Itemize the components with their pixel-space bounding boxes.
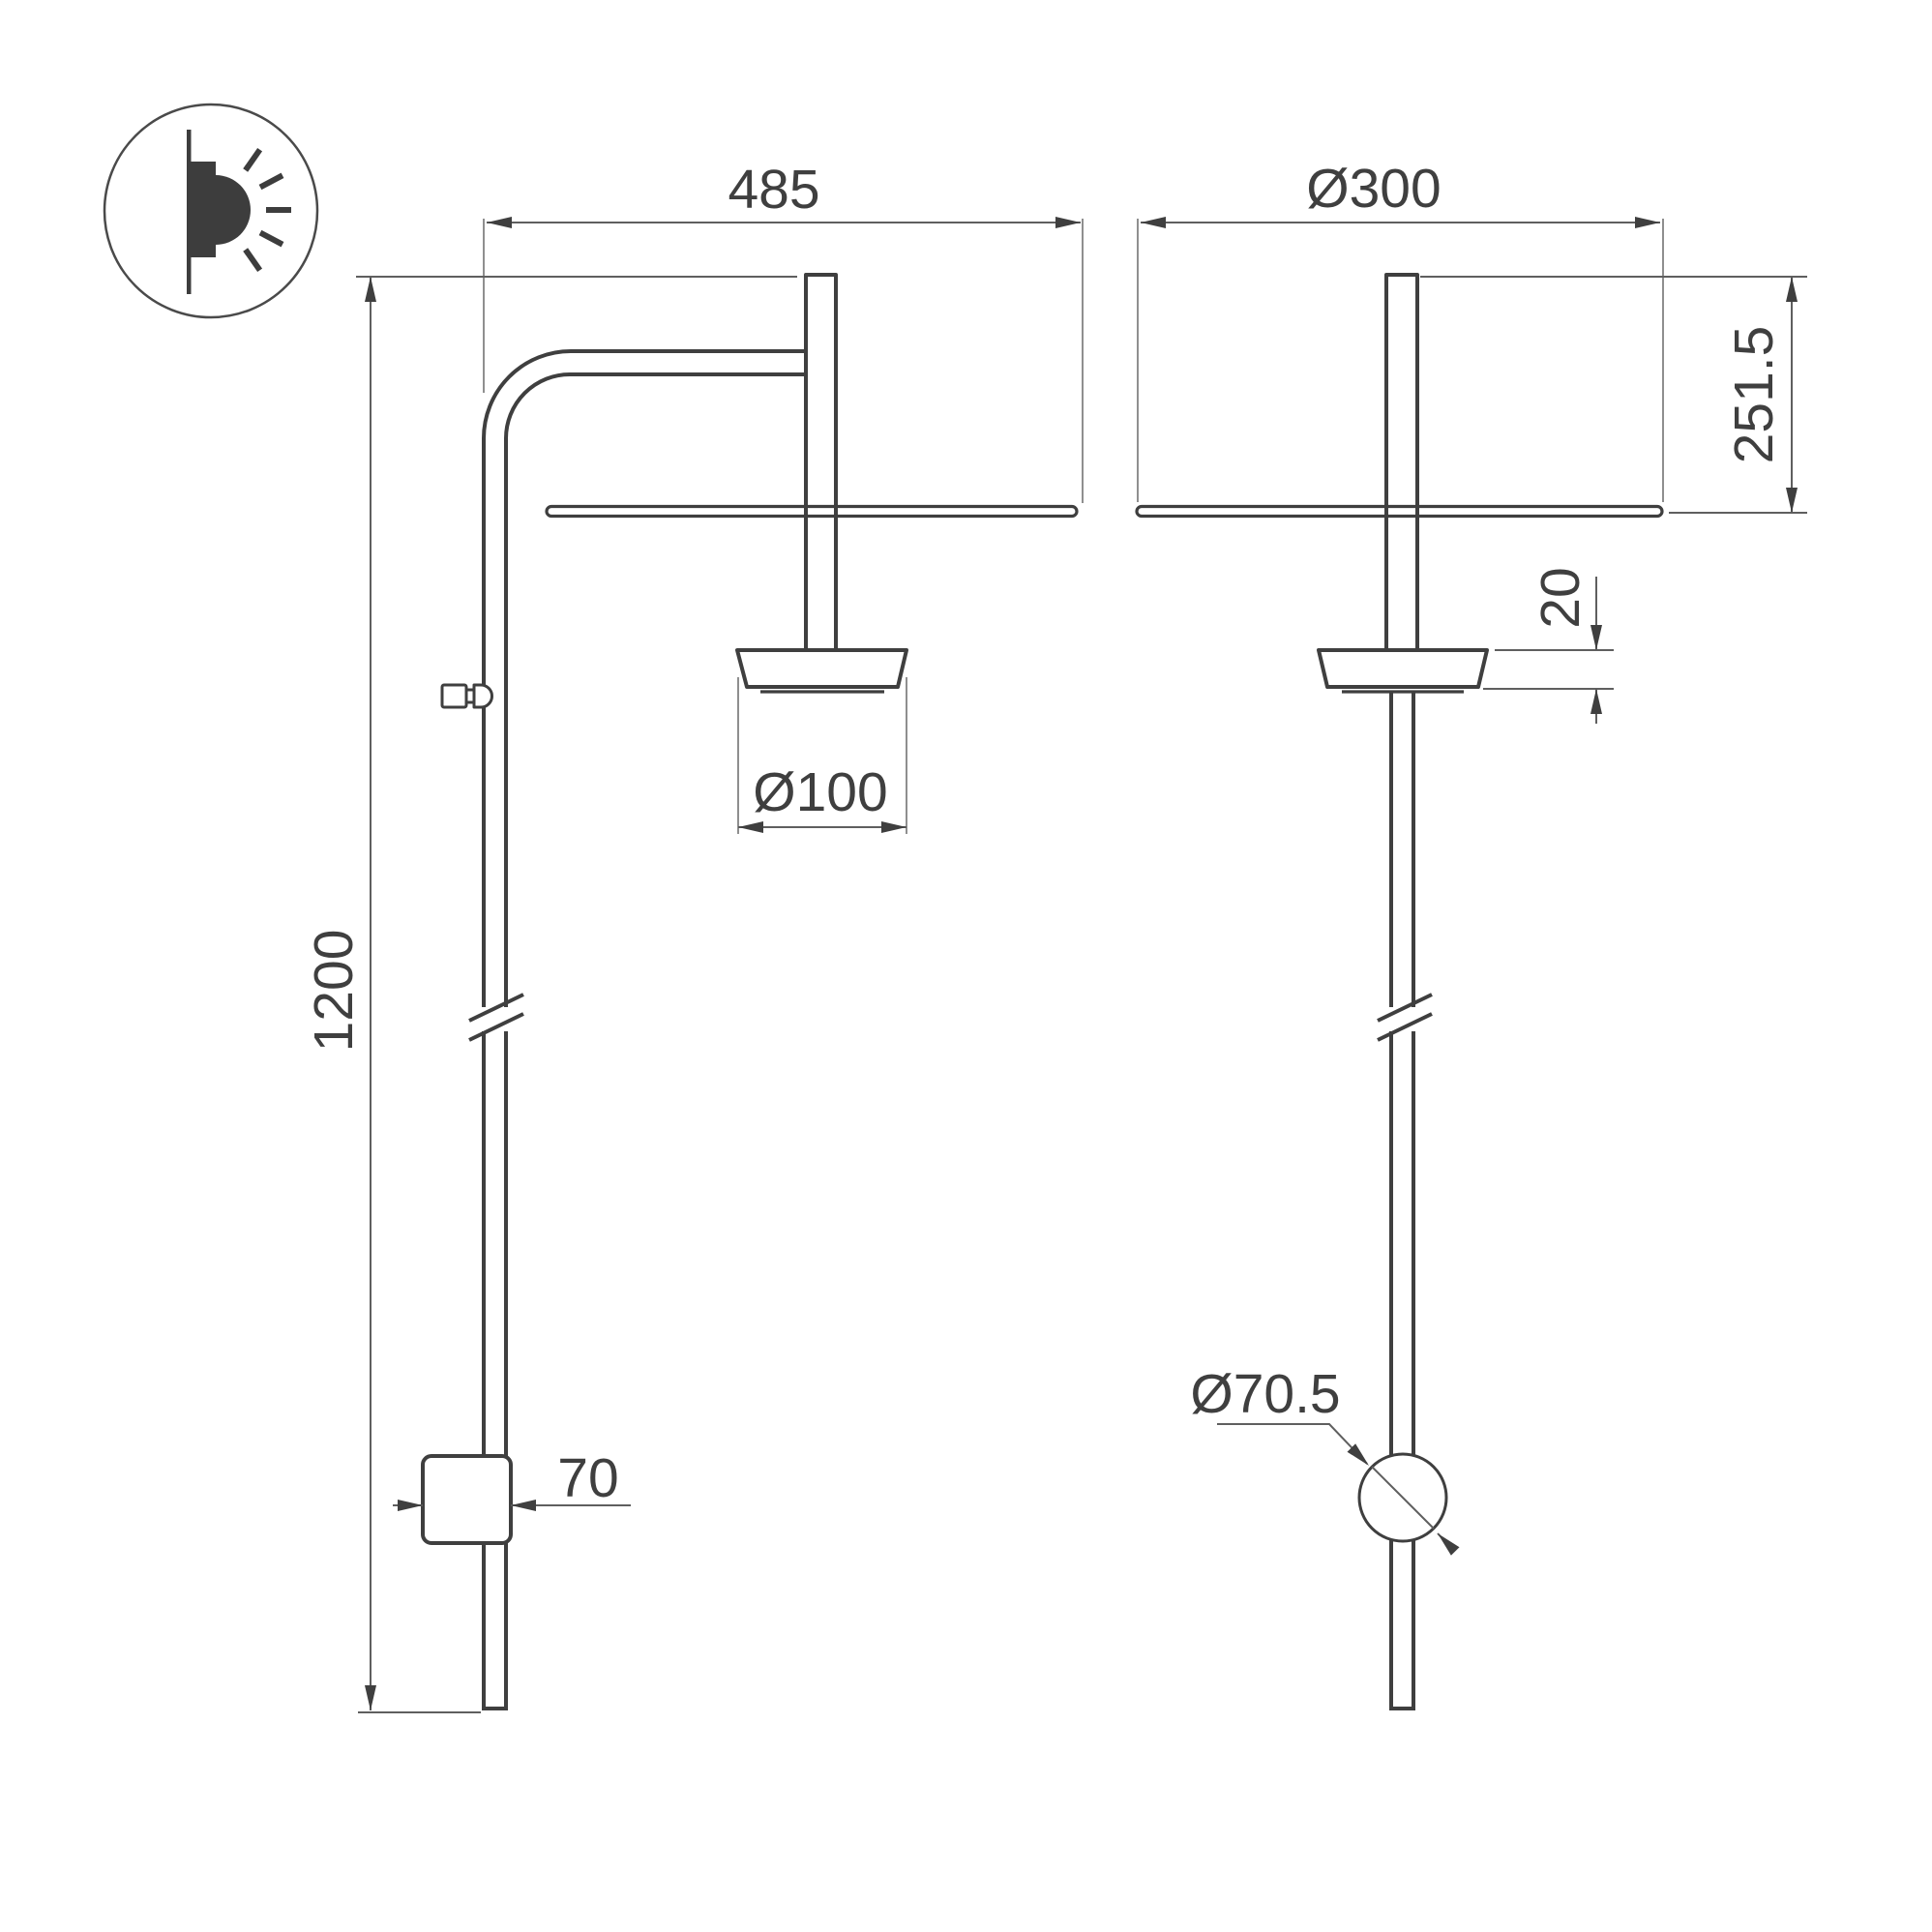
arrowhead	[365, 1685, 376, 1710]
dim-300-label: Ø300	[1306, 158, 1441, 220]
switch-knob-cap	[474, 685, 492, 707]
shade-disc-edge	[547, 507, 1077, 517]
dim-300: Ø300	[1138, 158, 1663, 502]
dim-70-label: 70	[557, 1447, 618, 1509]
arrowhead	[1055, 217, 1081, 228]
dim-485-label: 485	[728, 159, 819, 221]
front-view	[1137, 275, 1662, 1709]
dim-1200-label: 1200	[303, 930, 365, 1053]
switch-knob-base	[442, 685, 466, 707]
arrowhead	[365, 277, 376, 302]
arrowhead	[487, 217, 512, 228]
side-view	[423, 275, 1077, 1709]
icon-wall-line	[187, 130, 192, 294]
icon-light-ray	[246, 250, 260, 270]
head-stem	[1386, 275, 1417, 650]
pipe-break-symbol	[1378, 995, 1432, 1040]
arrowhead	[1635, 217, 1660, 228]
dim-20: 20	[1483, 567, 1614, 724]
dim-70-5-label: Ø70.5	[1190, 1363, 1340, 1425]
wall-light-icon	[104, 104, 317, 317]
arrowhead	[1786, 488, 1798, 513]
head-stem	[806, 275, 836, 650]
pole-arm-outer-line	[484, 351, 806, 1007]
dim-485: 485	[484, 159, 1083, 503]
icon-light-lens	[216, 175, 251, 245]
technical-drawing: 485 1200 Ø100 70	[0, 0, 1932, 1932]
dim-251-5-label: 251.5	[1723, 326, 1785, 464]
switch-knob	[442, 685, 492, 707]
arrowhead	[1438, 1533, 1460, 1556]
arrowhead	[398, 1500, 423, 1511]
arrowhead	[1590, 625, 1602, 650]
dim-100: Ø100	[738, 677, 907, 834]
dim-100-label: Ø100	[753, 761, 887, 823]
arrowhead	[1786, 277, 1798, 302]
arrowhead	[1590, 689, 1602, 714]
icon-light-ray	[246, 150, 260, 170]
arrowhead	[511, 1500, 536, 1511]
lamp-cup	[1319, 650, 1487, 687]
leader-line	[1217, 1424, 1367, 1464]
shade-disc-edge	[1137, 507, 1662, 517]
lamp-cup	[737, 650, 907, 687]
dim-1200: 1200	[303, 277, 797, 1712]
icon-light-ray	[260, 233, 282, 245]
dim-251-5: 251.5	[1420, 277, 1807, 513]
pipe-break-symbol	[469, 995, 523, 1040]
dim-20-label: 20	[1530, 567, 1591, 628]
icon-light-ray	[260, 175, 282, 187]
arrowhead	[1141, 217, 1166, 228]
mount-box	[423, 1456, 511, 1543]
icon-lamp-body	[191, 162, 216, 257]
